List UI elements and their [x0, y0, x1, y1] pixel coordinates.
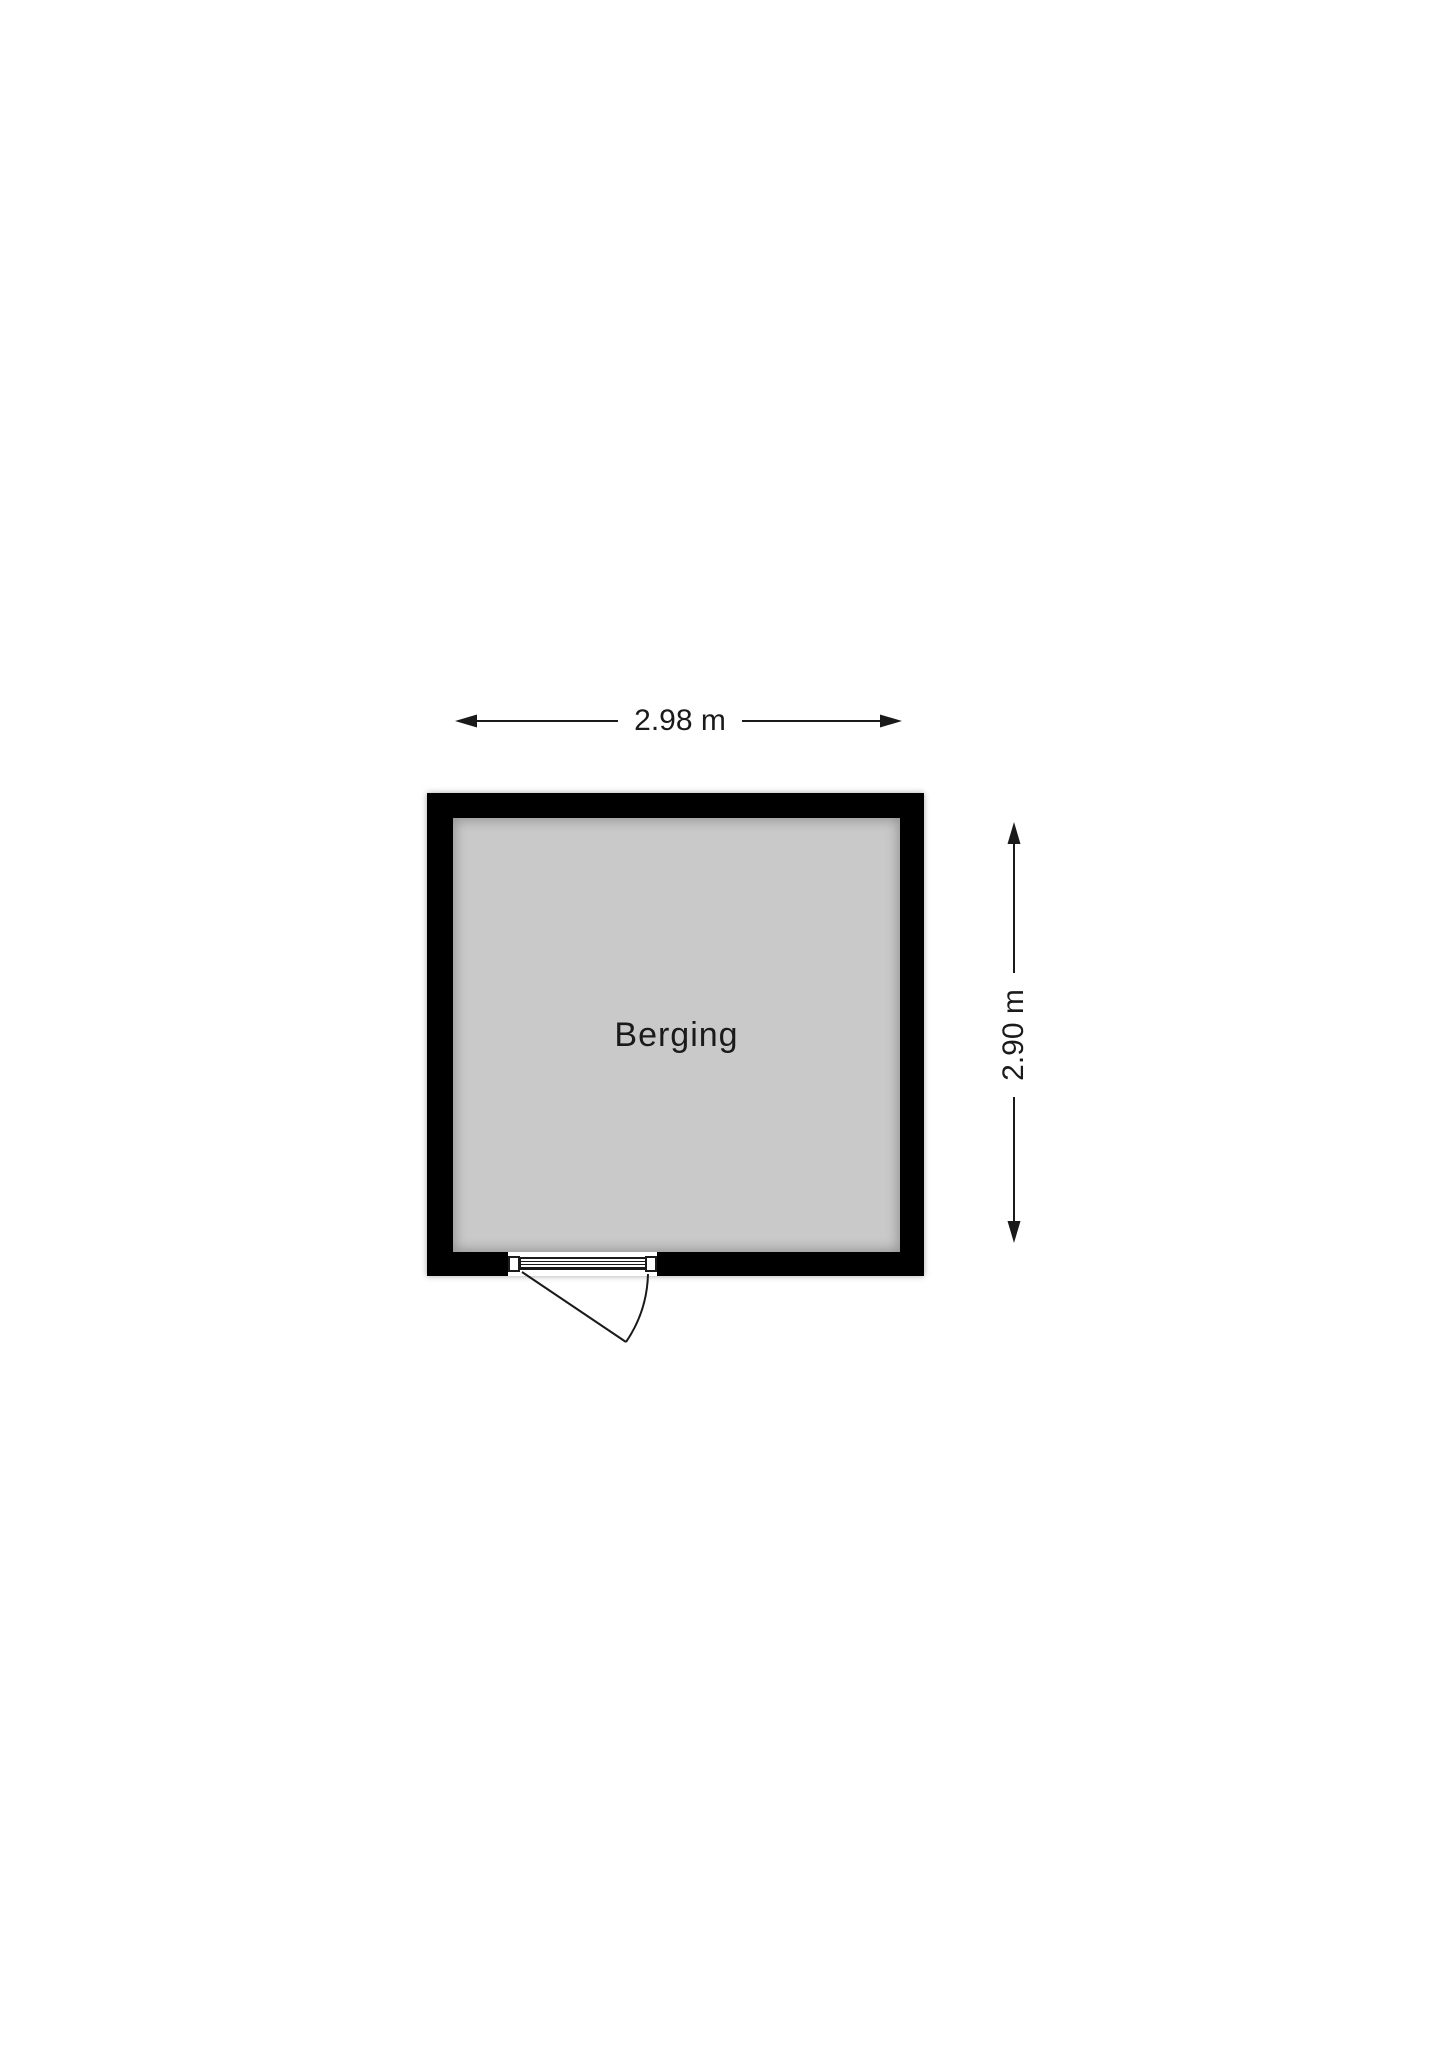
door-threshold: [519, 1257, 647, 1270]
room-floor: Berging: [453, 818, 900, 1252]
height-dimension-label: 2.90 m: [997, 955, 1031, 1115]
width-dimension-label: 2.98 m: [600, 704, 760, 738]
floorplan-canvas: 2.98 m 2.90 m Berging: [0, 0, 1448, 2048]
door-leaf-line: [522, 1272, 626, 1342]
room-name-label: Berging: [614, 1016, 738, 1055]
door-swing: [522, 1272, 648, 1342]
door-swing-arc: [626, 1274, 648, 1342]
